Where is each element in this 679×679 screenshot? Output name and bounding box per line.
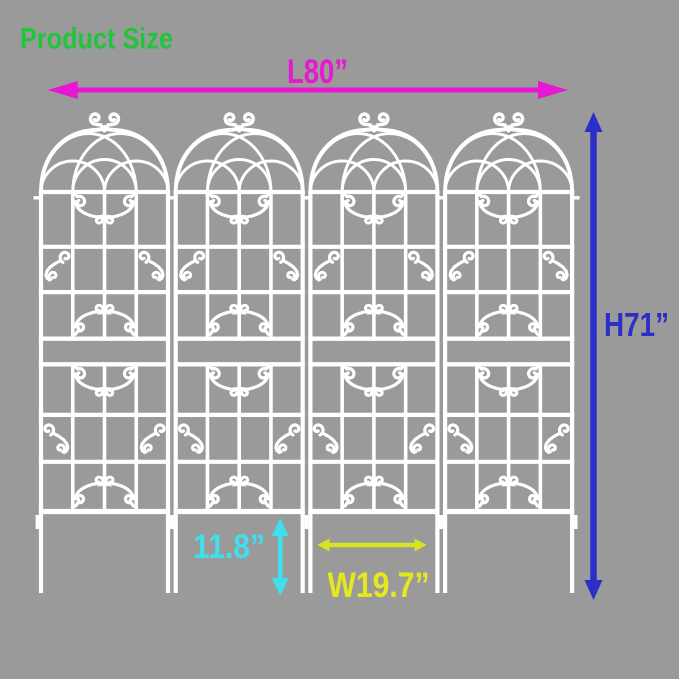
svg-text:W19.7”: W19.7” <box>328 566 430 605</box>
svg-text:H71”: H71” <box>604 306 669 343</box>
svg-text:Product Size: Product Size <box>20 23 173 56</box>
svg-text:L80”: L80” <box>287 53 348 91</box>
svg-text:11.8”: 11.8” <box>193 528 265 566</box>
